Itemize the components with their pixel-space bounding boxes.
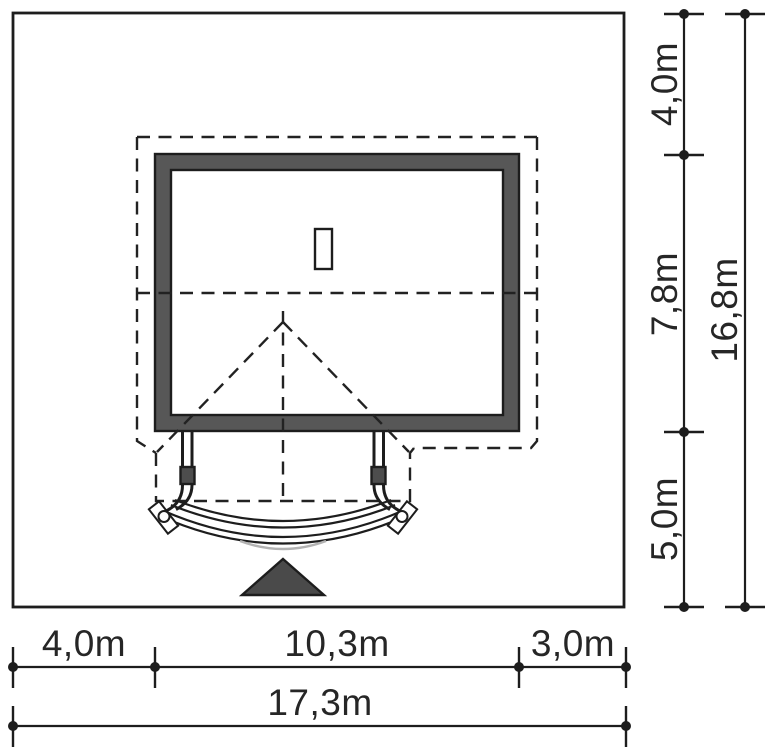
right-dim-dot-2	[679, 150, 689, 160]
dim-label-bottom-left: 4,0m	[42, 623, 126, 664]
dim-label-right-bottom: 5,0m	[644, 477, 685, 561]
left-column-block	[181, 467, 195, 484]
chimney	[315, 229, 332, 269]
dimensions-bottom: 4,0m 10,3m 3,0m 17,3m	[8, 623, 631, 747]
dim-label-bottom-middle: 10,3m	[284, 623, 389, 664]
dim-label-bottom-total: 17,3m	[267, 682, 372, 723]
dim-label-right-total: 16,8m	[704, 257, 745, 362]
left-end-post-circle	[159, 511, 170, 522]
bottom-dim-dot-4	[621, 662, 631, 672]
right-dim-dot-4	[679, 602, 689, 612]
right-total-dot-1	[740, 9, 750, 19]
bottom-dim-dot-3	[514, 662, 524, 672]
right-column-block	[372, 467, 386, 484]
dim-label-right-middle: 7,8m	[644, 252, 685, 336]
dim-label-bottom-right: 3,0m	[531, 623, 615, 664]
bottom-total-dot-2	[621, 721, 631, 731]
right-dim-dot-3	[679, 427, 689, 437]
right-dim-dot-1	[679, 9, 689, 19]
bottom-total-dot-1	[8, 721, 18, 731]
right-end-post-circle	[397, 511, 408, 522]
right-total-dot-2	[740, 602, 750, 612]
site-plan-drawing: 4,0m 10,3m 3,0m 17,3m 4,0m 7,8m 5,0m 16,…	[0, 0, 770, 751]
bottom-dim-dot-1	[8, 662, 18, 672]
dim-label-right-top: 4,0m	[644, 42, 685, 126]
bottom-dim-dot-2	[150, 662, 160, 672]
dimensions-right: 4,0m 7,8m 5,0m 16,8m	[644, 9, 765, 612]
